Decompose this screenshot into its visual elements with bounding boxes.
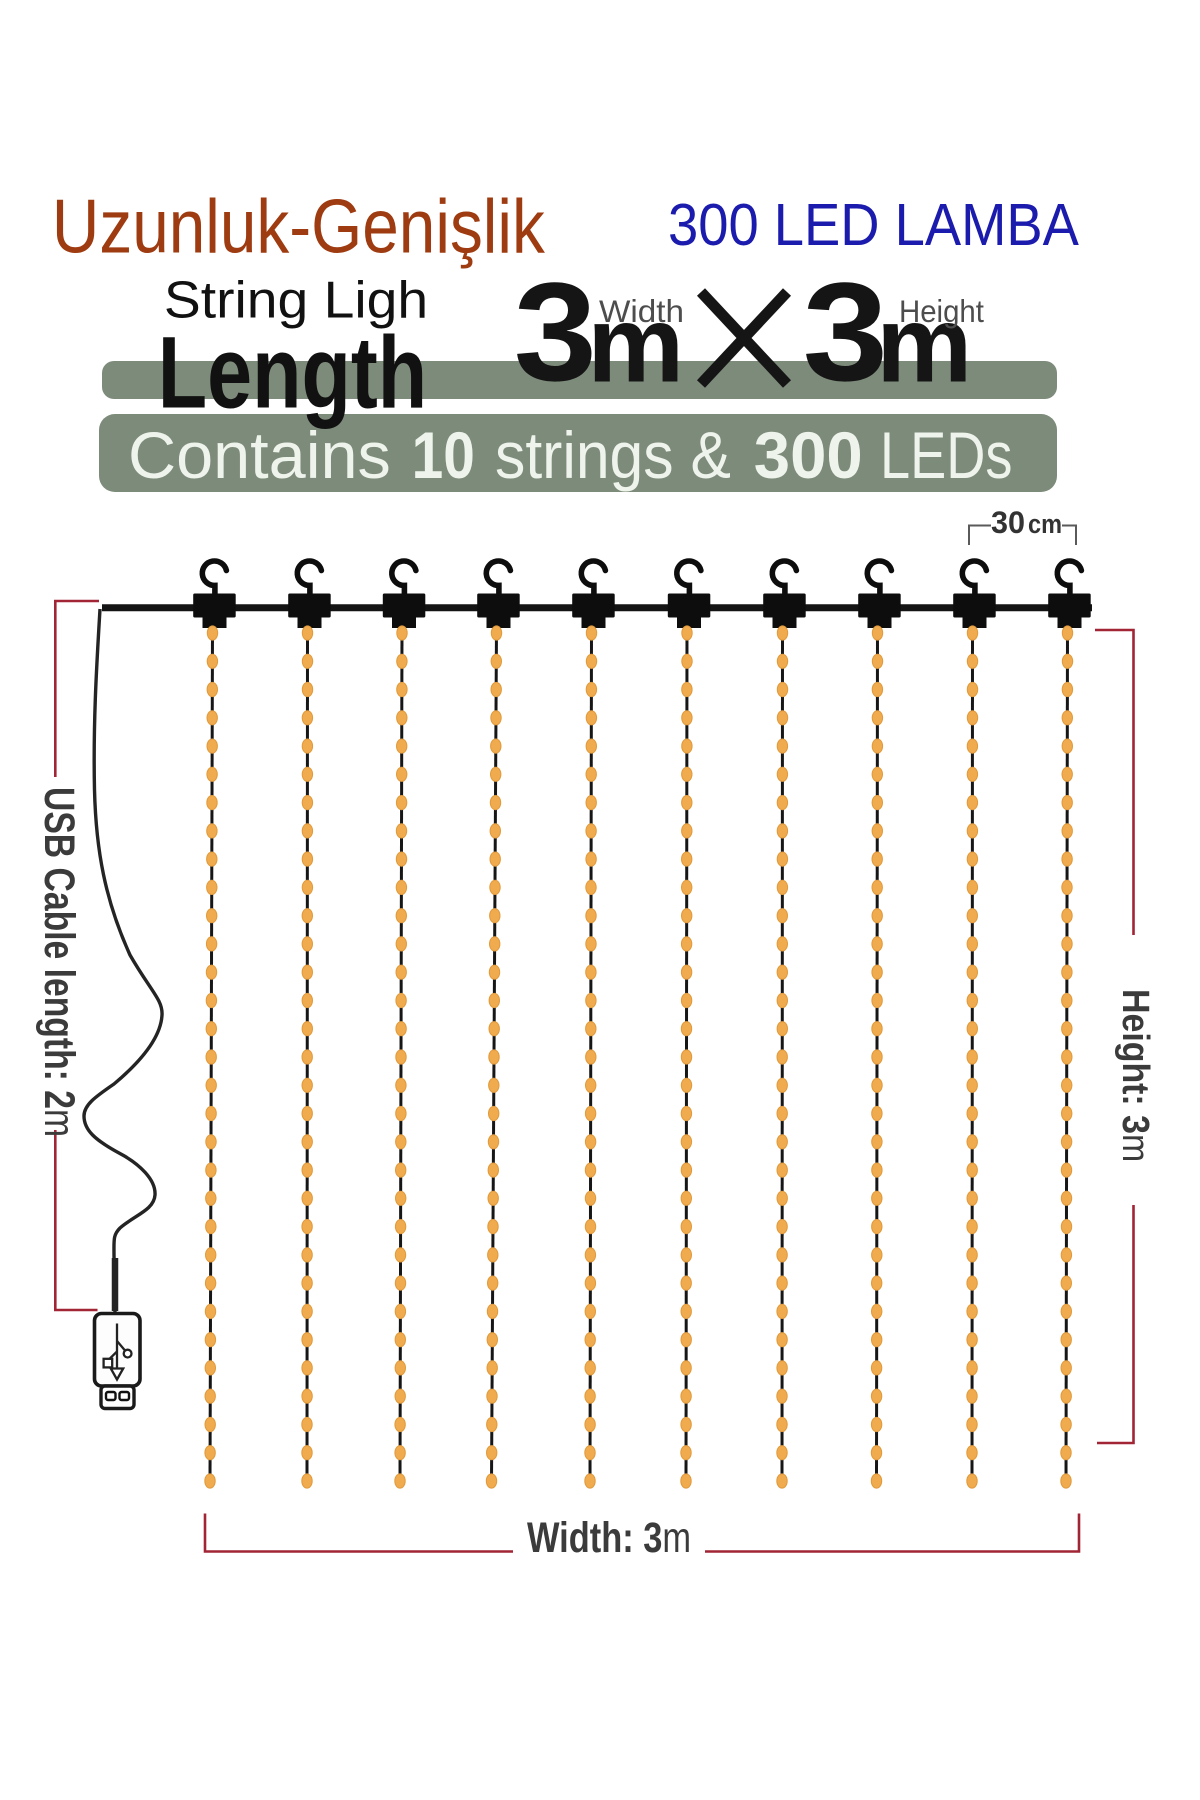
svg-text:Width: Width [599,294,684,329]
svg-text:30: 30 [991,505,1025,541]
svg-text:USB Cable length: 2m: USB Cable length: 2m [35,787,83,1137]
svg-text:Uzunluk-Genişlik: Uzunluk-Genişlik [52,185,545,270]
svg-text:cm: cm [1028,510,1062,540]
svg-text:Height: Height [899,294,984,329]
svg-text:Contains: Contains [128,418,391,491]
svg-text:300: 300 [754,419,863,492]
svg-text:3: 3 [514,253,597,410]
svg-text:Length: Length [158,316,427,430]
svg-text:Height: 3m: Height: 3m [1115,989,1158,1162]
svg-text:Width: 3m: Width: 3m [527,1515,691,1562]
svg-text:strings &: strings & [495,420,731,493]
svg-text:LEDs: LEDs [880,419,1012,492]
svg-text:3: 3 [803,254,888,410]
svg-text:300 LED LAMBA: 300 LED LAMBA [668,193,1079,259]
svg-text:10: 10 [412,418,475,492]
